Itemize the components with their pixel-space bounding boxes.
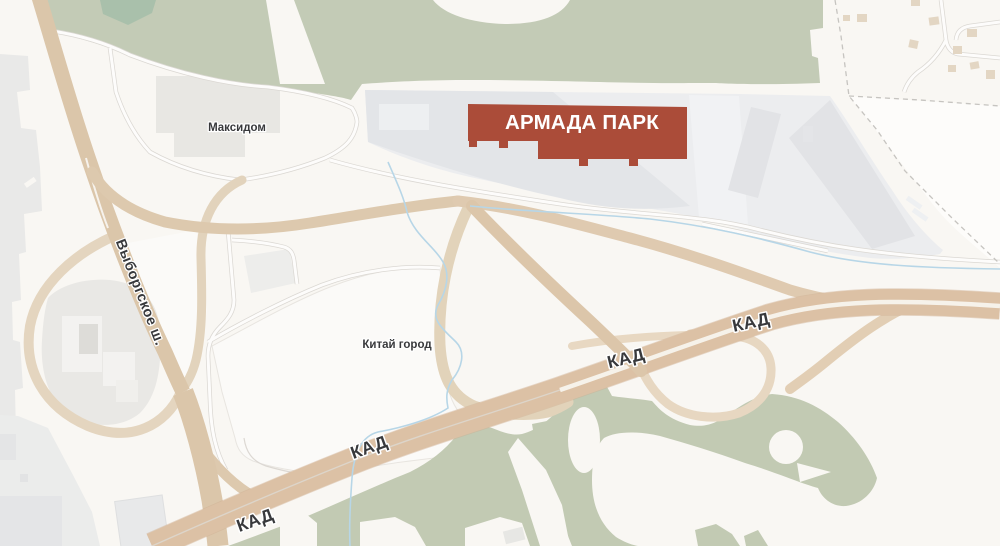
- svg-text:АРМАДА ПАРК: АРМАДА ПАРК: [505, 111, 659, 134]
- svg-text:Китай город: Китай город: [362, 339, 432, 351]
- svg-text:Максидом: Максидом: [208, 122, 266, 134]
